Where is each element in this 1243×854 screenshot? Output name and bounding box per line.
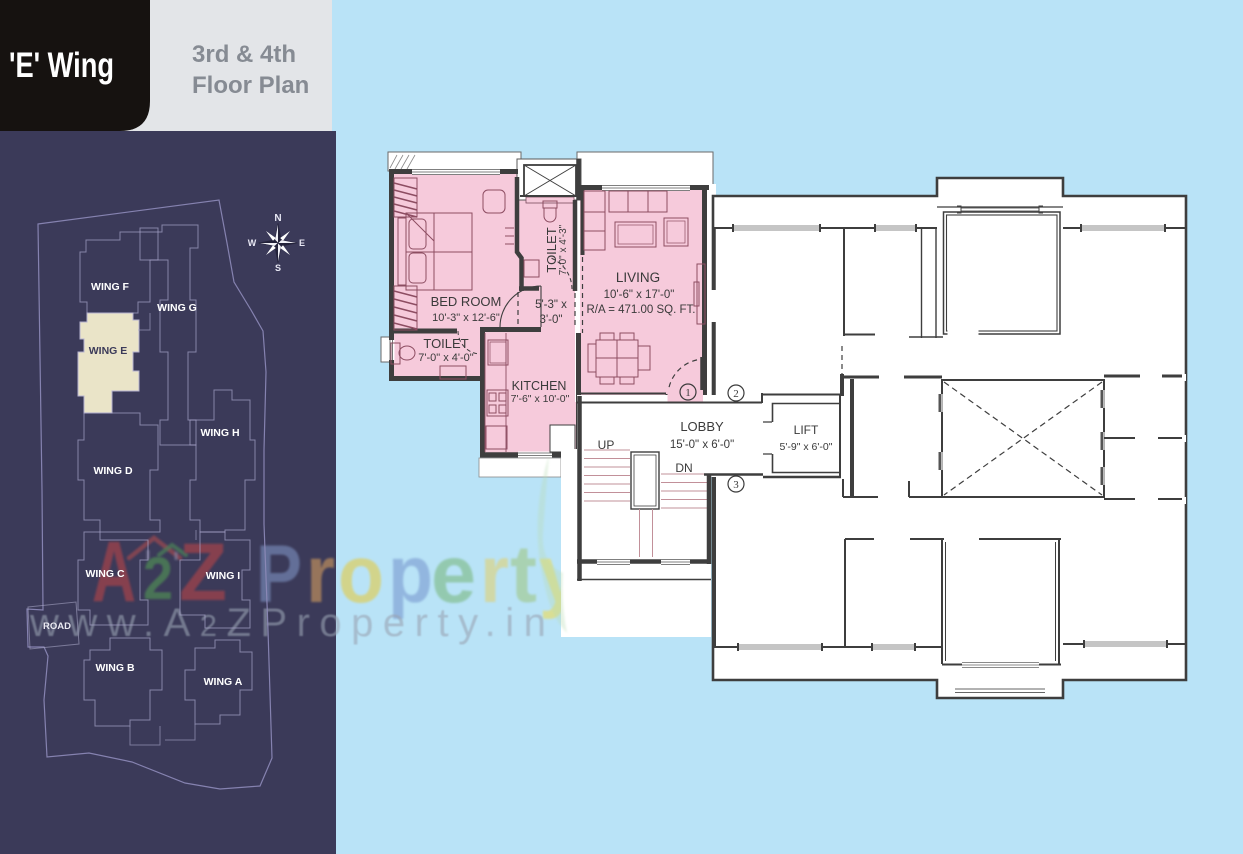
svg-text:DN: DN [675, 461, 692, 475]
svg-text:WING H: WING H [200, 427, 239, 439]
svg-text:UP: UP [598, 438, 615, 452]
svg-text:1: 1 [685, 387, 691, 399]
svg-text:www.A2ZProperty.in: www.A2ZProperty.in [29, 601, 555, 645]
svg-text:N: N [274, 213, 281, 224]
svg-text:ROAD: ROAD [43, 621, 71, 632]
svg-text:10'-6" x 17'-0": 10'-6" x 17'-0" [604, 289, 675, 301]
svg-text:R/A = 471.00 SQ. FT.: R/A = 471.00 SQ. FT. [587, 304, 696, 316]
svg-text:WING E: WING E [89, 345, 128, 357]
svg-text:7'-0" x 4'-3": 7'-0" x 4'-3" [558, 224, 569, 275]
svg-text:'E' Wing: 'E' Wing [9, 46, 114, 85]
svg-text:S: S [275, 263, 281, 273]
svg-text:3rd & 4th: 3rd & 4th [192, 41, 296, 68]
svg-text:WING F: WING F [91, 281, 129, 293]
svg-text:LIVING: LIVING [616, 270, 660, 285]
svg-text:TOILET: TOILET [423, 336, 468, 351]
svg-text:BED ROOM: BED ROOM [431, 294, 502, 309]
svg-text:E: E [299, 238, 305, 248]
svg-text:LIFT: LIFT [794, 423, 819, 437]
svg-text:3'-0": 3'-0" [540, 314, 563, 326]
svg-text:WING I: WING I [206, 570, 240, 582]
svg-text:WING D: WING D [93, 465, 132, 477]
svg-text:WING B: WING B [95, 662, 134, 674]
svg-text:2: 2 [733, 388, 739, 400]
svg-text:KITCHEN: KITCHEN [512, 379, 567, 393]
svg-text:5'-3" x: 5'-3" x [535, 299, 567, 311]
svg-text:WING C: WING C [85, 568, 124, 580]
svg-text:WING A: WING A [204, 676, 243, 688]
svg-text:WING G: WING G [157, 302, 197, 314]
svg-text:W: W [248, 238, 257, 248]
svg-text:7'-6" x 10'-0": 7'-6" x 10'-0" [511, 393, 570, 405]
svg-text:LOBBY: LOBBY [680, 419, 724, 434]
svg-text:7'-0" x 4'-0": 7'-0" x 4'-0" [418, 352, 474, 364]
svg-text:5'-9" x 6'-0": 5'-9" x 6'-0" [780, 441, 833, 453]
svg-text:3: 3 [733, 479, 739, 491]
svg-text:TOILET: TOILET [544, 227, 559, 272]
svg-text:15'-0" x 6'-0": 15'-0" x 6'-0" [670, 439, 734, 451]
svg-text:Floor Plan: Floor Plan [192, 72, 309, 99]
svg-text:10'-3" x 12'-6": 10'-3" x 12'-6" [432, 312, 500, 324]
